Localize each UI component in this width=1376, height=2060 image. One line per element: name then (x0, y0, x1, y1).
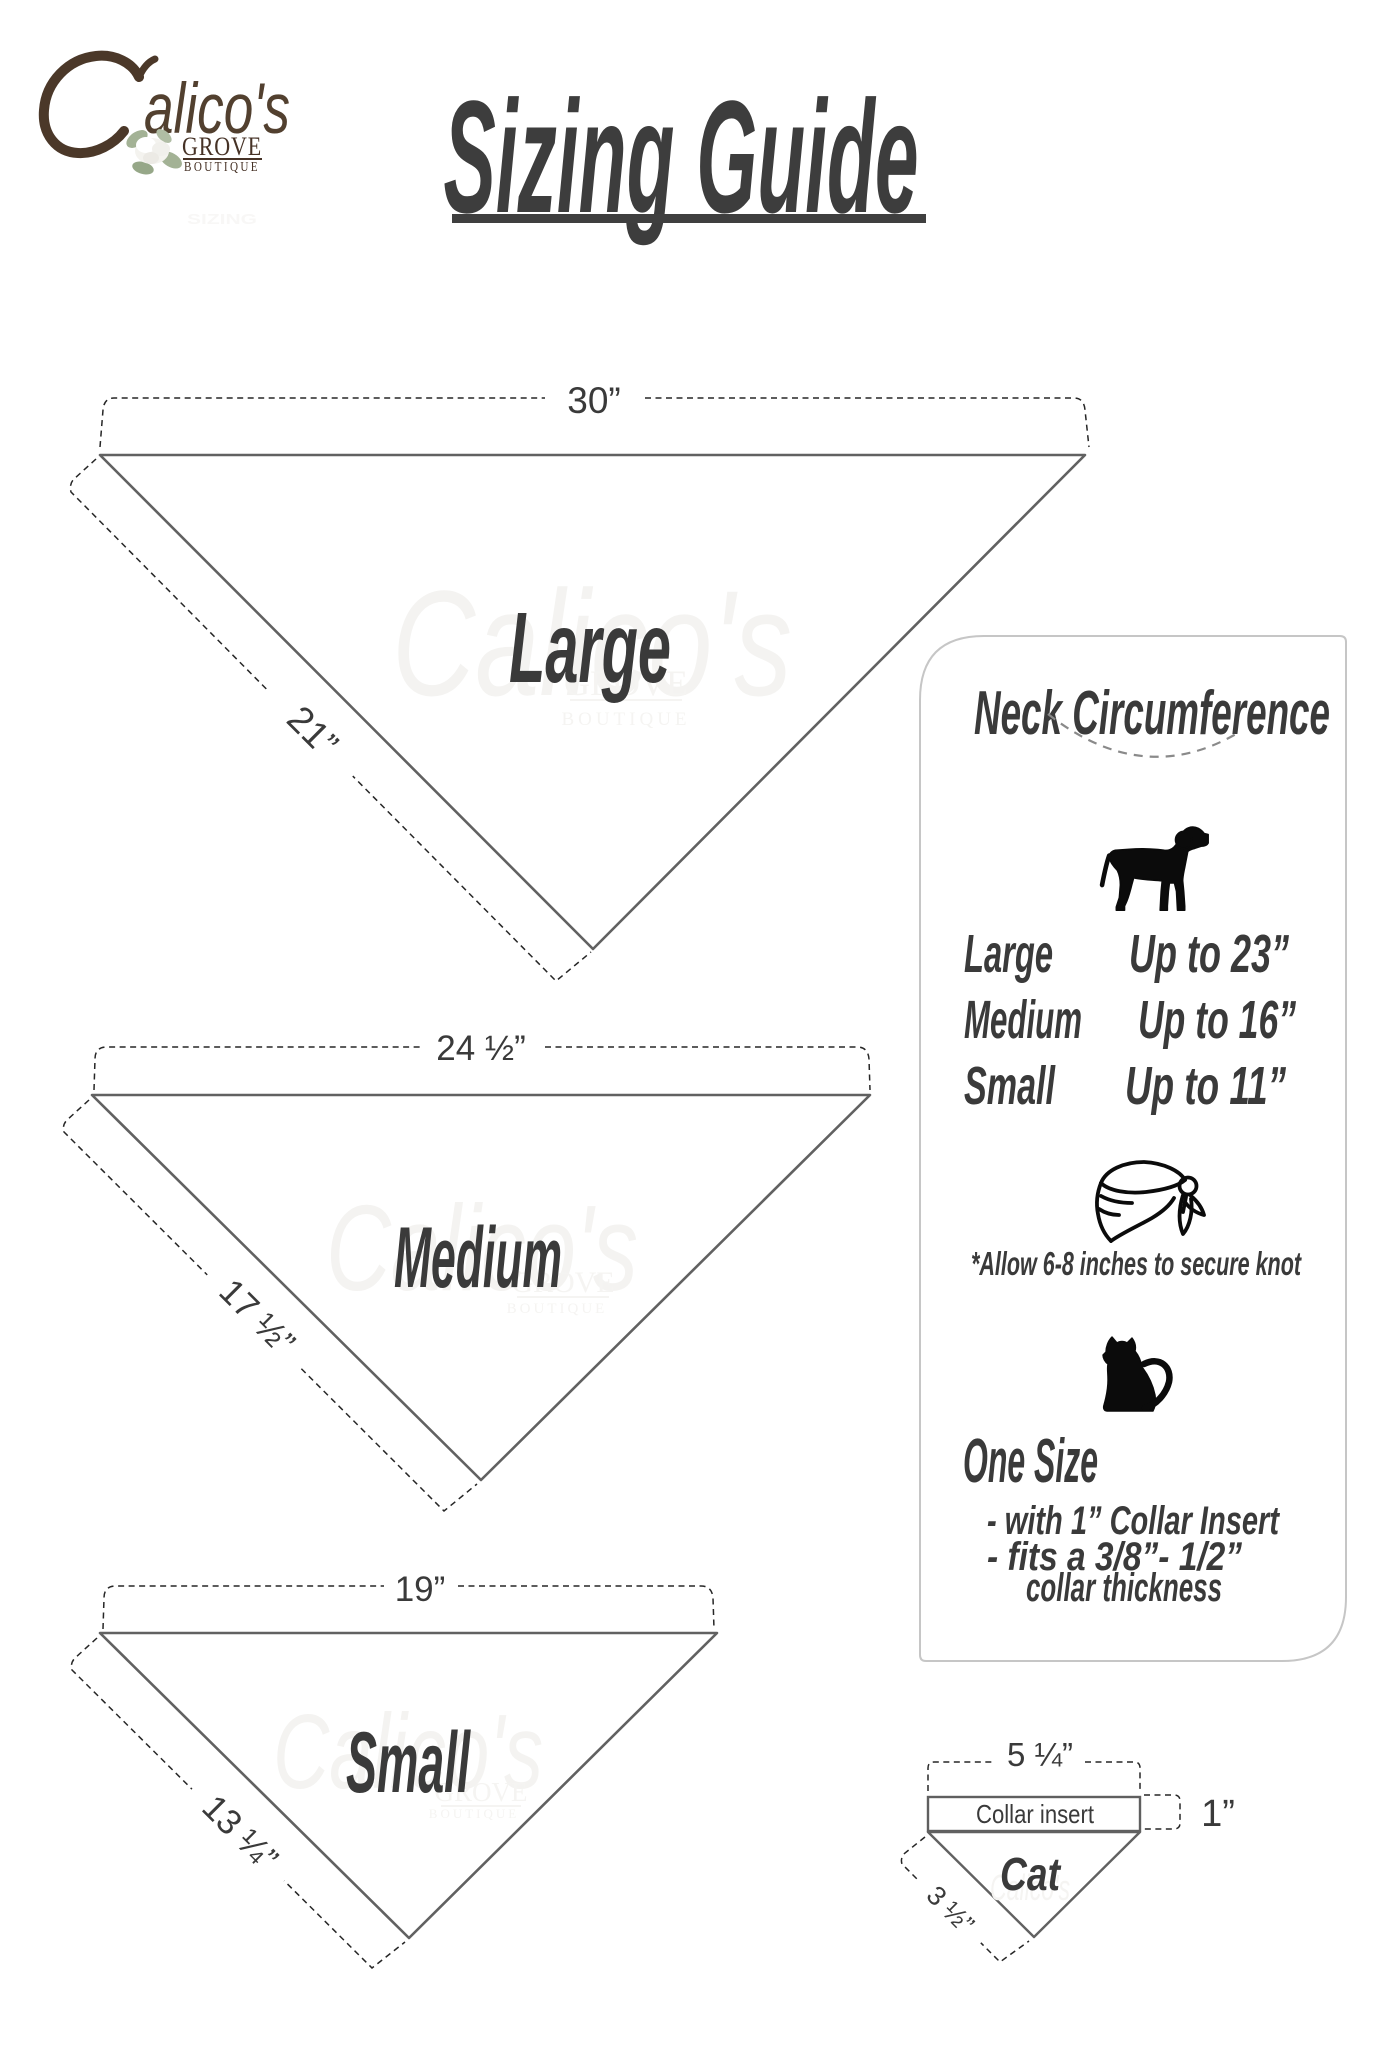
svg-text:Large: Large (964, 924, 1053, 984)
svg-text:Small: Small (346, 1715, 471, 1811)
svg-text:Small: Small (964, 1056, 1056, 1116)
svg-text:BOUTIQUE: BOUTIQUE (561, 709, 690, 730)
svg-text:*Allow 6-8 inches to secure kn: *Allow 6-8 inches to secure knot (971, 1245, 1302, 1282)
svg-text:Large: Large (509, 592, 671, 704)
svg-text:5 ¼”: 5 ¼” (1007, 1736, 1073, 1773)
svg-text:Collar insert: Collar insert (976, 1799, 1095, 1829)
svg-text:Medium: Medium (394, 1210, 562, 1306)
svg-text:SIZING: SIZING (187, 211, 257, 228)
svg-text:Medium: Medium (964, 990, 1082, 1050)
svg-text:One Size: One Size (963, 1427, 1098, 1496)
svg-text:30”: 30” (567, 380, 620, 421)
svg-text:19”: 19” (395, 1570, 446, 1609)
svg-text:Up to 16”: Up to 16” (1138, 990, 1296, 1050)
svg-text:BOUTIQUE: BOUTIQUE (184, 160, 260, 175)
svg-text:GROVE: GROVE (182, 132, 262, 161)
svg-text:collar thickness: collar thickness (1026, 1566, 1222, 1610)
svg-text:Neck Circumference: Neck Circumference (974, 679, 1330, 748)
svg-text:24 ½”: 24 ½” (436, 1029, 526, 1068)
svg-text:Up to 11”: Up to 11” (1125, 1056, 1286, 1116)
svg-text:Up to 23”: Up to 23” (1129, 924, 1289, 984)
svg-text:Cat: Cat (1000, 1848, 1061, 1900)
svg-text:1”: 1” (1201, 1793, 1235, 1835)
